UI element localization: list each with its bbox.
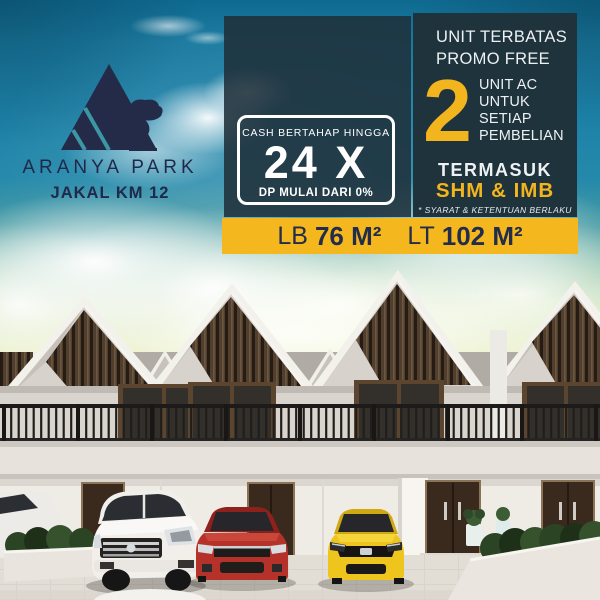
gable-roof-3 — [312, 270, 484, 387]
ac-promo: 2 UNIT AC UNTUK SETIAP PEMBELIAN — [423, 75, 564, 147]
poster-root: ARANYA PARK JAKAL KM 12 CASH BERTAHAP HI… — [0, 0, 600, 600]
lt-label: LT — [407, 222, 434, 251]
brand-location: JAKAL KM 12 — [8, 184, 212, 203]
specs-bar: LB 76 M² LT 102 M² — [222, 218, 578, 254]
ac-text: UNIT AC UNTUK SETIAP PEMBELIAN — [479, 77, 564, 145]
lb-label: LB — [277, 222, 308, 251]
lt-value: 102 M² — [442, 221, 523, 252]
include-value: SHM & IMB — [413, 179, 577, 203]
ac-number: 2 — [423, 75, 472, 147]
brand-logo-block: ARANYA PARK JAKAL KM 12 — [8, 60, 212, 203]
installment-box: CASH BERTAHAP HINGGA 24 X DP MULAI DARI … — [237, 115, 395, 205]
limited-line1: UNIT TERBATAS — [436, 27, 567, 49]
balcony-deck — [0, 441, 600, 479]
aranya-park-logo-icon — [51, 60, 169, 154]
include-label: TERMASUK — [413, 160, 577, 181]
brand-name: ARANYA PARK — [8, 157, 212, 179]
promo-panel: UNIT TERBATAS PROMO FREE 2 UNIT AC UNTUK… — [413, 13, 577, 217]
balcony-railing — [0, 404, 600, 442]
yellow-hatchback-car — [328, 509, 404, 584]
lb-value: 76 M² — [315, 221, 381, 252]
white-mpv-car — [92, 490, 202, 591]
installment-note: DP MULAI DARI 0% — [240, 187, 392, 199]
gable-roof-1 — [3, 296, 167, 392]
installment-panel: CASH BERTAHAP HINGGA 24 X DP MULAI DARI … — [224, 16, 411, 217]
terms-disclaimer: * SYARAT & KETENTUAN BERLAKU — [413, 205, 577, 215]
installment-value: 24 X — [240, 140, 392, 185]
gable-roof-2 — [148, 283, 316, 390]
house-row — [0, 270, 600, 600]
